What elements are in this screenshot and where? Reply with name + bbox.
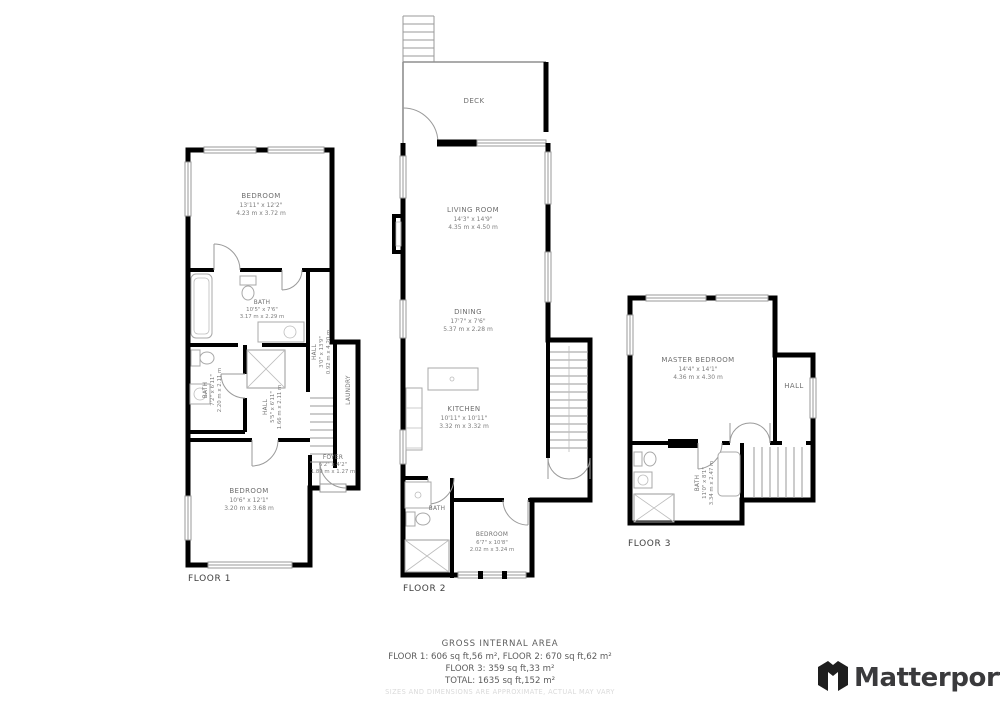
floor3-labels: MASTER BEDROOM 14'4" x 14'1" 4.36 m x 4.… xyxy=(628,356,804,549)
room-label-bath-top: BATH xyxy=(254,300,271,306)
room-dim-ft-living: 14'3" x 14'9" xyxy=(453,216,492,223)
room-label-bedroom-bottom: BEDROOM xyxy=(229,487,268,495)
room-dim-m-master: 4.36 m x 4.30 m xyxy=(673,374,723,381)
room-dim-m-bedroom-top: 4.23 m x 3.72 m xyxy=(236,210,286,217)
room-dim-ft-bedroom2: 6'7" x 10'8" xyxy=(476,540,508,546)
room-dim-m-dining: 5.37 m x 2.28 m xyxy=(443,326,493,333)
room-label-bath-left: BATH 7'2" x 6'11" 2.20 m x 2.11 m xyxy=(203,368,223,413)
room-dim-m-bedroom2: 2.02 m x 3.24 m xyxy=(470,547,515,553)
room-dim-ft-foyer: 6'2" x 4'2" xyxy=(319,462,347,468)
summary-disclaimer: SIZES AND DIMENSIONS ARE APPROXIMATE, AC… xyxy=(385,688,615,696)
summary-line3: TOTAL: 1635 sq ft,152 m² xyxy=(444,676,555,686)
room-dim-ft-bedroom-bottom: 10'6" x 12'1" xyxy=(229,497,268,504)
floor3-stairs xyxy=(754,447,802,498)
floor-2: DECK LIVING ROOM 14'3" x 14'9" 4.35 m x … xyxy=(394,16,590,594)
floor2-label: FLOOR 2 xyxy=(403,584,446,594)
area-summary: GROSS INTERNAL AREA FLOOR 1: 606 sq ft,5… xyxy=(385,639,615,696)
floor2-exterior-stairs xyxy=(403,16,434,62)
svg-text:HALL: HALL xyxy=(263,399,269,415)
matterport-logo-text: Matterport xyxy=(854,663,1000,693)
room-dim-m-foyer: 1.89 m x 1.27 m xyxy=(311,469,356,475)
room-label-kitchen: KITCHEN xyxy=(447,405,480,413)
floor-1: BEDROOM 13'11" x 12'2" 4.23 m x 3.72 m B… xyxy=(185,147,358,584)
room-dim-ft-dining: 17'7" x 7'6" xyxy=(450,318,486,325)
room-label-deck: DECK xyxy=(464,97,485,105)
floor2-stairs xyxy=(550,346,588,452)
room-dim-ft-master: 14'4" x 14'1" xyxy=(678,366,717,373)
floor2-bath-fixtures xyxy=(405,482,449,572)
matterport-logo-icon xyxy=(818,661,848,691)
floor1-closet xyxy=(247,350,285,388)
room-label-bedroom2: BEDROOM xyxy=(476,532,508,538)
svg-text:11'0" x 8'1": 11'0" x 8'1" xyxy=(702,467,708,499)
floor3-fixtures xyxy=(634,452,740,522)
floor1-label: FLOOR 1 xyxy=(188,574,231,584)
room-label-hall-right: HALL 3'0" x 13'9" 0.92 m x 4.20 m xyxy=(312,330,332,375)
room-dim-m-bath-top: 3.17 m x 2.29 m xyxy=(240,314,285,320)
room-label-master: MASTER BEDROOM xyxy=(661,356,734,364)
room-dim-ft-bedroom-top: 13'11" x 12'2" xyxy=(240,202,283,209)
matterport-logo: Matterport xyxy=(818,661,1000,693)
room-label-hall3: HALL xyxy=(784,382,803,390)
svg-text:BATH: BATH xyxy=(203,382,209,399)
svg-text:3'0" x 13'9": 3'0" x 13'9" xyxy=(319,336,325,368)
room-label-bedroom-top: BEDROOM xyxy=(241,192,280,200)
room-label-hall-center: HALL 5'5" x 6'11" 1.66 m x 2.11 m xyxy=(263,385,283,430)
room-dim-m-kitchen: 3.32 m x 3.32 m xyxy=(439,423,489,430)
floor-3: MASTER BEDROOM 14'4" x 14'1" 4.36 m x 4.… xyxy=(627,295,816,549)
floor3-label: FLOOR 3 xyxy=(628,539,671,549)
room-dim-m-bedroom-bottom: 3.20 m x 3.68 m xyxy=(224,505,274,512)
summary-line1: FLOOR 1: 606 sq ft,56 m², FLOOR 2: 670 s… xyxy=(388,652,611,662)
floorplan-canvas: BEDROOM 13'11" x 12'2" 4.23 m x 3.72 m B… xyxy=(0,0,1000,707)
room-label-living: LIVING ROOM xyxy=(447,206,499,214)
room-label-dining: DINING xyxy=(454,308,482,316)
svg-text:1.66 m x 2.11 m: 1.66 m x 2.11 m xyxy=(277,385,283,430)
svg-text:BATH: BATH xyxy=(695,475,701,492)
floor1-stairs xyxy=(310,398,333,462)
svg-text:7'2" x 6'11": 7'2" x 6'11" xyxy=(210,374,216,406)
floorplan-page: BEDROOM 13'11" x 12'2" 4.23 m x 3.72 m B… xyxy=(0,0,1000,707)
svg-text:HALL: HALL xyxy=(312,344,318,360)
room-label-foyer: FOYER xyxy=(323,455,343,461)
room-dim-ft-kitchen: 10'11" x 10'11" xyxy=(441,415,488,422)
svg-text:5'5" x 6'11": 5'5" x 6'11" xyxy=(270,391,276,423)
summary-line2: FLOOR 3: 359 sq ft,33 m² xyxy=(445,664,554,674)
svg-text:0.92 m x 4.20 m: 0.92 m x 4.20 m xyxy=(326,330,332,375)
svg-text:2.20 m x 2.11 m: 2.20 m x 2.11 m xyxy=(217,368,223,413)
summary-title: GROSS INTERNAL AREA xyxy=(442,639,559,649)
room-dim-ft-bath-top: 10'5" x 7'6" xyxy=(246,307,278,313)
room-label-bath2: BATH xyxy=(429,506,446,512)
room-label-laundry: LAUNDRY xyxy=(346,375,352,405)
room-dim-m-living: 4.35 m x 4.50 m xyxy=(448,224,498,231)
svg-text:3.34 m x 2.47 m: 3.34 m x 2.47 m xyxy=(709,461,715,506)
